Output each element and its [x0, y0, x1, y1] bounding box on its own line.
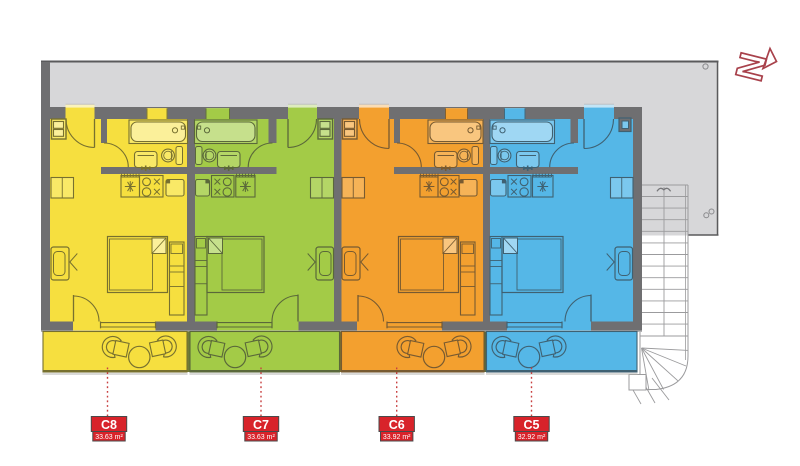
svg-text:33.63 m²: 33.63 m²	[95, 434, 123, 441]
svg-text:C7: C7	[253, 418, 269, 432]
svg-text:C5: C5	[524, 418, 540, 432]
svg-text:C6: C6	[389, 418, 405, 432]
svg-text:C8: C8	[101, 418, 117, 432]
svg-text:33.63 m²: 33.63 m²	[247, 434, 275, 441]
svg-text:32.92 m²: 32.92 m²	[518, 434, 546, 441]
svg-text:33.92 m²: 33.92 m²	[383, 434, 411, 441]
